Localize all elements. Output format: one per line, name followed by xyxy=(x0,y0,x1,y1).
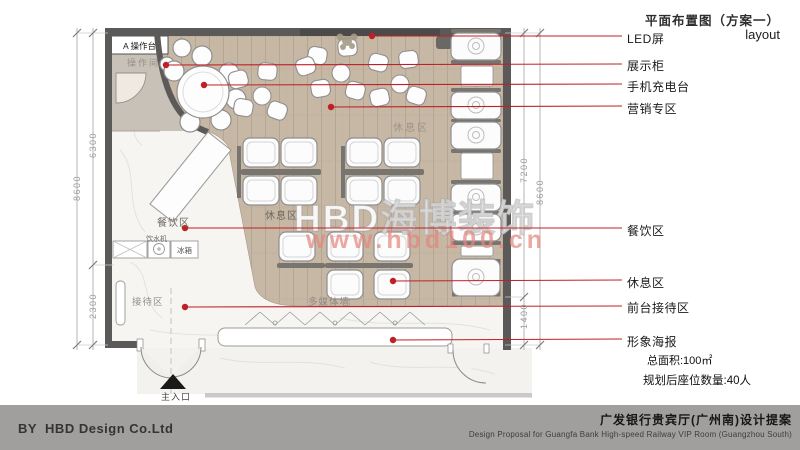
media-wall-hatch xyxy=(245,312,425,325)
chair-clusters xyxy=(227,38,428,122)
reception-bench xyxy=(116,281,125,325)
callout-marketing-zone: 营销专区 xyxy=(627,100,677,117)
watermark-url: www.hbd100.cn xyxy=(306,226,546,255)
label-operation-counter: A 操作台 xyxy=(111,40,168,52)
front-desk xyxy=(218,328,452,346)
footer-bar: BY HBD Design Co.Ltd 广发银行贵宾厅(广州南)设计提案 De… xyxy=(0,405,800,450)
right-booths xyxy=(451,29,501,296)
corner-booth xyxy=(452,259,500,296)
label-media-wall: 多媒体墙 xyxy=(308,294,350,308)
round-table-cluster xyxy=(160,39,246,132)
led-screen-wall xyxy=(300,29,440,36)
corner-booth-back xyxy=(452,259,498,294)
entrance-arrow xyxy=(160,374,186,389)
threshold-area xyxy=(137,348,532,398)
callout-display-cabinet: 展示柜 xyxy=(627,57,665,74)
seat-count-stat: 规划后座位数量:40人 xyxy=(643,372,751,388)
dim-left-upper: 6300 xyxy=(88,132,98,158)
dining-counter xyxy=(150,132,231,222)
callout-dining-zone: 餐饮区 xyxy=(627,222,665,239)
callout-led-screen: LED屏 xyxy=(627,30,664,47)
plant xyxy=(337,34,358,51)
project-title-cn: 广发银行贵宾厅(广州南)设计提案 xyxy=(600,411,792,428)
operation-room-door xyxy=(116,73,146,103)
label-dining-area: 餐饮区 xyxy=(157,214,190,229)
dim-right-lower: 1400 xyxy=(519,303,529,329)
label-rest-area-center: 休息区 xyxy=(265,207,298,222)
label-fridge: 冰箱 xyxy=(171,245,198,256)
round-table xyxy=(177,66,229,118)
designer-credit: BY HBD Design Co.Ltd xyxy=(18,421,173,436)
label-rest-area-top: 休息区 xyxy=(393,119,429,134)
total-area-stat: 总面积:100㎡ xyxy=(647,352,712,368)
dim-left-total: 8600 xyxy=(72,175,82,201)
dim-right-upper: 7200 xyxy=(519,157,529,183)
callout-front-desk: 前台接待区 xyxy=(627,299,690,316)
callout-phone-charging: 手机充电台 xyxy=(627,78,690,95)
wood-floor xyxy=(157,36,503,306)
label-main-entrance: 主入口 xyxy=(161,390,191,403)
label-water-dispenser: 饮水机 xyxy=(146,234,167,244)
design-proposal-slide: HBD海博装饰 www.hbd100.cn 平面布置图（方案一） layout … xyxy=(0,0,800,450)
callout-rest-zone: 休息区 xyxy=(627,274,665,291)
side-door xyxy=(448,344,489,383)
label-operation-room: 操作间 xyxy=(127,56,160,69)
project-title-en: Design Proposal for Guangfa Bank High-sp… xyxy=(469,430,792,439)
side-table xyxy=(461,153,493,179)
callout-image-poster: 形象海报 xyxy=(627,333,677,350)
dim-left-lower: 2300 xyxy=(88,293,98,319)
dim-right-total: 8600 xyxy=(535,179,545,205)
label-reception-area: 接待区 xyxy=(132,294,164,308)
drawing-title-en: layout xyxy=(598,27,780,42)
side-table xyxy=(461,66,493,86)
